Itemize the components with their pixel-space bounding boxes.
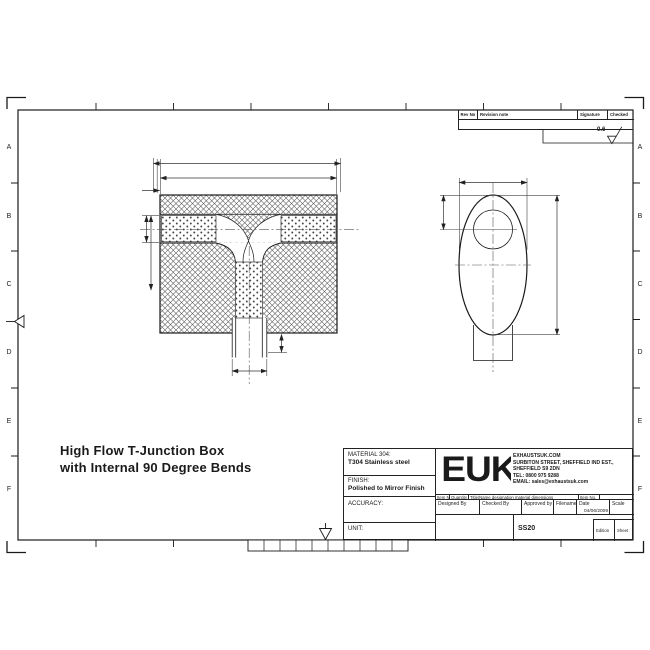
corner-mark-top-right <box>625 98 644 110</box>
revision-col-checked: Checked <box>608 110 634 120</box>
bottom-row: SS20 Edition Sheet <box>436 515 634 541</box>
front-view <box>140 158 359 384</box>
accuracy-label: ACCURACY: <box>348 501 435 508</box>
material-value: T304 Stainless steel <box>348 459 435 467</box>
unit-cell: UNIT: <box>344 523 436 541</box>
scale-cell: Scale <box>610 500 634 515</box>
end-view <box>440 178 560 372</box>
zone-label-left-a: A <box>4 144 14 152</box>
zone-label-right-f: F <box>635 486 645 494</box>
drawing-canvas <box>0 0 650 650</box>
revision-col-signature: Signature <box>578 110 608 120</box>
zone-label-left-e: E <box>4 418 14 426</box>
zone-label-right-d: D <box>635 349 645 357</box>
finish-cell: FINISH: Polished to Mirror Finish <box>344 476 436 497</box>
approved-by-cell: Approved by date <box>522 500 554 515</box>
date-cell: Date 04/06/2009 <box>577 500 610 515</box>
zone-label-left-c: C <box>4 281 14 289</box>
filename-value: SS20 <box>518 525 535 532</box>
company-line-5: EMAIL: sales@exhaustsuk.com <box>513 479 634 486</box>
finish-label: FINISH: <box>348 478 435 485</box>
finish-value: Polished to Mirror Finish <box>348 485 435 493</box>
bottom-empty-cell <box>436 515 514 541</box>
corner-mark-bottom-right <box>625 541 644 553</box>
revision-step-line <box>543 130 633 143</box>
revision-col-note: Revision note <box>478 110 578 120</box>
perforated-tube-left <box>162 216 217 242</box>
zone-label-left-b: B <box>4 213 14 221</box>
title-block: MATERIAL 304: T304 Stainless steel FINIS… <box>343 448 633 540</box>
drawing-title: High Flow T-Junction Box with Internal 9… <box>60 443 251 476</box>
approval-row: Designed By Checked By Approved by date … <box>436 500 634 515</box>
company-logo: EUK <box>436 449 511 491</box>
edition-cell: Edition <box>593 519 614 541</box>
perforated-tube-right <box>281 216 336 242</box>
filename-cell: Filename <box>554 500 577 515</box>
accuracy-cell: ACCURACY: <box>344 497 436 523</box>
date-label: Date <box>577 500 609 508</box>
checked-by-cell: Checked By <box>480 500 522 515</box>
revision-empty-row <box>459 120 634 130</box>
zone-label-right-c: C <box>635 281 645 289</box>
engineering-drawing-sheet: { "sheet": { "title_line1": "High Flow T… <box>0 0 650 650</box>
company-address-cell: EXHAUSTSUK.COM SURBITON STREET, SHEFFIEL… <box>511 449 634 494</box>
centering-mark-left <box>6 316 24 328</box>
drawing-title-line1: High Flow T-Junction Box <box>60 443 251 460</box>
unit-label: UNIT: <box>348 526 435 533</box>
designed-by-cell: Designed By <box>436 500 480 515</box>
corner-mark-bottom-left <box>7 541 26 553</box>
zone-label-left-d: D <box>4 349 14 357</box>
zone-label-right-e: E <box>635 418 645 426</box>
material-cell: MATERIAL 304: T304 Stainless steel <box>344 449 436 476</box>
zone-label-right-b: B <box>635 213 645 221</box>
sheet-cell: Sheet <box>614 519 634 541</box>
filename-value-cell: SS20 <box>514 515 593 541</box>
revision-col-rev-no: Rev No <box>459 110 478 120</box>
corner-mark-top-left <box>7 98 26 110</box>
material-label: MATERIAL 304: <box>348 452 435 459</box>
revision-table: Rev No Revision note Signature Checked <box>458 110 633 130</box>
zone-label-left-f: F <box>4 486 14 494</box>
zone-label-right-a: A <box>635 144 645 152</box>
logo-cell: EUK <box>436 449 511 494</box>
drawing-title-line2: with Internal 90 Degree Bends <box>60 460 251 477</box>
surface-finish-value: 0.6 <box>597 127 605 133</box>
scale-bar <box>248 540 408 551</box>
